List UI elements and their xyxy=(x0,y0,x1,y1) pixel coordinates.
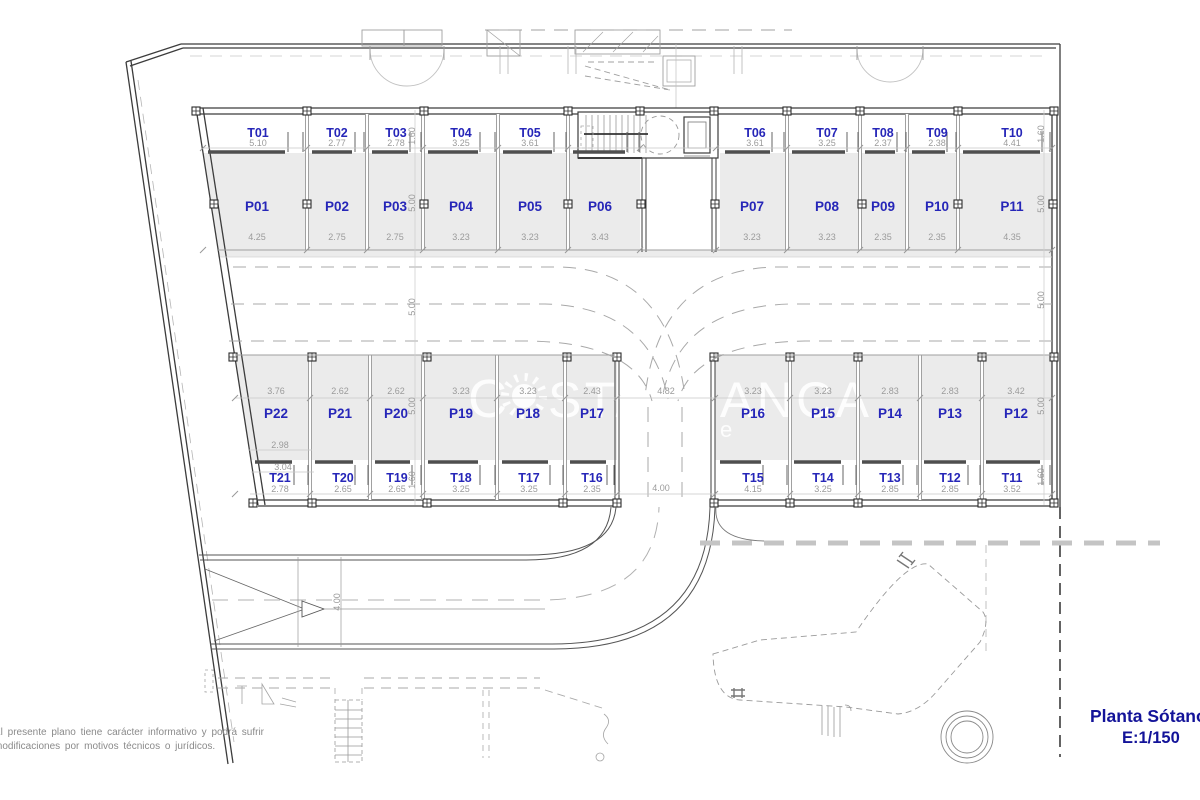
storage-label: T20 xyxy=(332,471,354,485)
driveway xyxy=(199,507,768,649)
parking-label: P13 xyxy=(938,406,963,421)
parking-label: P19 xyxy=(449,406,473,421)
extra-dim: 4.82 xyxy=(657,386,675,396)
storage-label: T13 xyxy=(879,471,901,485)
vertical-dim: 1.60 xyxy=(1036,468,1046,486)
parking-label: P01 xyxy=(245,199,270,214)
storage-dim: 2.77 xyxy=(328,138,346,148)
vertical-dim: 1.60 xyxy=(1036,125,1046,143)
storage-label: T18 xyxy=(450,471,472,485)
vertical-dim: 5.00 xyxy=(407,397,417,415)
vertical-dim: 5.00 xyxy=(1036,397,1046,415)
parking-label: P07 xyxy=(740,199,764,214)
parking-label: P04 xyxy=(449,199,474,214)
parking-label: P08 xyxy=(815,199,840,214)
storage-dim: 3.25 xyxy=(452,484,470,494)
pool-ladder-icon xyxy=(731,688,745,698)
plan-title: Planta Sótano xyxy=(1090,706,1200,727)
parking-label: P18 xyxy=(516,406,541,421)
parking-label: P15 xyxy=(811,406,836,421)
storage-dim: 2.65 xyxy=(388,484,406,494)
parking-dim: 3.23 xyxy=(519,386,537,396)
vertical-dim: 1.60 xyxy=(407,127,417,145)
storage-dim: 5.10 xyxy=(249,138,267,148)
spa-icon xyxy=(941,711,993,763)
parking-dim: 2.83 xyxy=(941,386,959,396)
storage-dim: 2.65 xyxy=(334,484,352,494)
storage-dim: 3.25 xyxy=(818,138,836,148)
ramp-slope-arrow xyxy=(205,557,545,647)
parking-label: P14 xyxy=(878,406,903,421)
parking-label: P17 xyxy=(580,406,604,421)
storage-dim: 2.38 xyxy=(928,138,946,148)
storage-label: T21 xyxy=(269,471,291,485)
parking-dim: 2.62 xyxy=(387,386,405,396)
watermark-letter: C xyxy=(468,369,507,429)
parking-dim: 3.23 xyxy=(814,386,832,396)
parking-dim: 2.43 xyxy=(583,386,601,396)
parking-dim: 2.83 xyxy=(881,386,899,396)
storage-dim: 2.78 xyxy=(271,484,289,494)
storage-dim: 3.25 xyxy=(814,484,832,494)
parking-label: P21 xyxy=(328,406,353,421)
parking-dim: 3.23 xyxy=(743,232,761,242)
storage-dim: 4.15 xyxy=(744,484,762,494)
pool-outline xyxy=(713,564,986,714)
storage-dim: 3.61 xyxy=(521,138,539,148)
parking-dim: 3.23 xyxy=(452,386,470,396)
parking-label: P02 xyxy=(325,199,349,214)
door-swing-icon xyxy=(370,46,444,86)
upper-elevator-icon xyxy=(663,56,695,86)
storage-label: T12 xyxy=(939,471,961,485)
parking-label: P12 xyxy=(1004,406,1028,421)
extra-dim: 2.98 xyxy=(271,440,289,450)
storage-label: T17 xyxy=(518,471,540,485)
parking-dim: 3.23 xyxy=(521,232,539,242)
storage-label: T11 xyxy=(1002,471,1023,485)
parking-dim: 2.35 xyxy=(928,232,946,242)
parking-label: P05 xyxy=(518,199,543,214)
parking-dim: 3.76 xyxy=(267,386,285,396)
parking-dim: 3.23 xyxy=(818,232,836,242)
parking-label: P03 xyxy=(383,199,408,214)
upper-floor-overlay xyxy=(362,30,923,108)
parking-label: P10 xyxy=(925,199,949,214)
parking-dim: 3.23 xyxy=(744,386,762,396)
parking-dim: 2.62 xyxy=(331,386,349,396)
garden-overlay xyxy=(205,543,1160,763)
extra-dim: 3.04 xyxy=(274,462,292,472)
garden-stair-icon xyxy=(335,700,362,762)
storage-label: T19 xyxy=(386,471,408,485)
vertical-dim: 5.00 xyxy=(1036,195,1046,213)
pool-ladder-icon xyxy=(897,552,915,568)
parking-dim: 3.43 xyxy=(591,232,609,242)
storage-dim: 3.52 xyxy=(1003,484,1021,494)
storage-label: T16 xyxy=(581,471,603,485)
storage-label: T15 xyxy=(742,471,764,485)
parking-dim: 3.42 xyxy=(1007,386,1025,396)
elevator-icon xyxy=(684,117,710,156)
vertical-dim: 5.00 xyxy=(407,298,417,316)
storage-row-bottom: T21 2.78 T20 2.65 T19 2.65 T18 3.25 T17 … xyxy=(269,471,1022,494)
vertical-dim: 5.00 xyxy=(1036,291,1046,309)
parking-dim: 4.35 xyxy=(1003,232,1021,242)
storage-dim: 3.25 xyxy=(452,138,470,148)
storage-dim: 3.61 xyxy=(746,138,764,148)
disclaimer-line: modificaciones por motivos técnicos o ju… xyxy=(0,740,286,754)
storage-dim: 2.78 xyxy=(387,138,405,148)
parking-dim: 2.75 xyxy=(386,232,404,242)
parking-label: P06 xyxy=(588,199,613,214)
vertical-dim: 5.00 xyxy=(407,194,417,212)
storage-dim: 2.35 xyxy=(583,484,601,494)
disclaimer-note: El presente plano tiene carácter informa… xyxy=(0,726,286,753)
floor-plan-drawing: C STABLANCA e xyxy=(0,0,1200,800)
extra-dim: 4.00 xyxy=(332,593,342,611)
door-swing-icon xyxy=(857,46,923,82)
parking-label: P22 xyxy=(264,406,288,421)
parking-dim: 3.23 xyxy=(452,232,470,242)
parking-dim: 4.25 xyxy=(248,232,266,242)
plan-scale: E:1/150 xyxy=(1122,729,1180,748)
parking-label: P16 xyxy=(741,406,766,421)
pool-steps xyxy=(822,705,851,737)
watermark-suffix: e xyxy=(720,417,732,442)
storage-dim: 2.37 xyxy=(874,138,892,148)
storage-dim: 3.25 xyxy=(520,484,538,494)
parking-dim: 2.75 xyxy=(328,232,346,242)
disclaimer-line: El presente plano tiene carácter informa… xyxy=(0,726,286,740)
extra-dim: 4.00 xyxy=(652,483,670,493)
storage-label: T14 xyxy=(812,471,834,485)
parking-label: P11 xyxy=(1000,199,1024,214)
floor-plan-sheet: C STABLANCA e xyxy=(0,0,1200,800)
storage-dim: 2.85 xyxy=(941,484,959,494)
parking-dim: 2.35 xyxy=(874,232,892,242)
vertical-dim: 1.60 xyxy=(407,471,417,489)
parking-label: P20 xyxy=(384,406,408,421)
parking-label: P09 xyxy=(871,199,895,214)
storage-dim: 2.85 xyxy=(881,484,899,494)
storage-dim: 4.41 xyxy=(1003,138,1021,148)
